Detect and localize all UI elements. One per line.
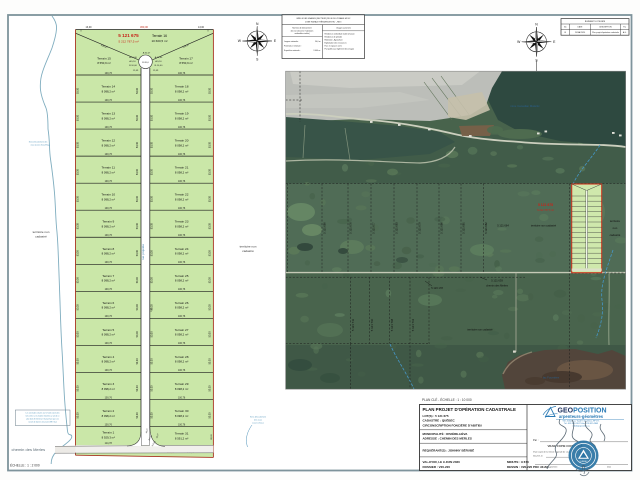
svg-text:50,00: 50,00 <box>151 87 154 94</box>
svg-text:8 098,2 m²: 8 098,2 m² <box>175 306 188 310</box>
svg-text:50,00: 50,00 <box>151 114 154 121</box>
svg-text:12,49: 12,49 <box>153 70 159 72</box>
svg-text:932, 3e Avenue, Val-d'Or (Québ: 932, 3e Avenue, Val-d'Or (Québec) J9P 1T… <box>563 419 600 422</box>
svg-text:50,00: 50,00 <box>136 412 139 419</box>
svg-text:chemin des Merles: chemin des Merles <box>486 283 508 287</box>
svg-text:5 121 680: 5 121 680 <box>323 222 327 234</box>
svg-text:20 MAI 2020: 20 MAI 2020 <box>575 31 585 34</box>
svg-text:100,76: 100,76 <box>105 72 113 75</box>
svg-text:114,78: 114,78 <box>105 442 113 445</box>
svg-text:50,00: 50,00 <box>209 358 212 365</box>
svg-text:Par :: Par : <box>533 438 539 442</box>
svg-text:Terrain 27: Terrain 27 <box>175 328 189 332</box>
svg-text:100,76: 100,76 <box>178 342 186 345</box>
svg-text:50,00: 50,00 <box>151 250 154 257</box>
svg-text:Terrain 23: Terrain 23 <box>175 220 189 224</box>
svg-text:100,76: 100,76 <box>178 261 186 264</box>
svg-text:8 550,9 m²: 8 550,9 m² <box>97 61 110 65</box>
svg-text:5 121 713: 5 121 713 <box>411 318 415 331</box>
svg-text:Terrain 18: Terrain 18 <box>175 85 189 89</box>
svg-text:50,00: 50,00 <box>209 196 212 203</box>
svg-text:50,00: 50,00 <box>77 141 80 148</box>
svg-text:territoire non: territoire non <box>33 230 50 234</box>
svg-text:eaux (cours d'eau): eaux (cours d'eau) <box>31 144 46 146</box>
svg-text:8 098,2 m²: 8 098,2 m² <box>175 279 188 283</box>
svg-text:rue projetée: rue projetée <box>141 244 145 260</box>
svg-text:8 098,2 m²: 8 098,2 m² <box>175 197 188 201</box>
svg-text:Terrain 24: Terrain 24 <box>175 247 189 251</box>
svg-text:territoire non cadastré: territoire non cadastré <box>467 328 493 332</box>
svg-text:01: 01 <box>564 32 566 34</box>
svg-text:50,00: 50,00 <box>151 358 154 365</box>
svg-text:5 121 681: 5 121 681 <box>462 222 466 234</box>
svg-text:No: No <box>564 27 566 29</box>
svg-text:Les servitudes situées sur le: Les servitudes situées sur le fonds vois… <box>26 411 60 414</box>
svg-text:PLAN PROJET D'OPÉRATION CADAST: PLAN PROJET D'OPÉRATION CADASTRALE <box>423 407 516 412</box>
svg-text:R:10,00: R:10,00 <box>155 65 163 67</box>
svg-text:8 098,2 m²: 8 098,2 m² <box>175 387 188 391</box>
svg-text:8 098,2 m²: 8 098,2 m² <box>102 170 115 174</box>
svg-text:50,00: 50,00 <box>151 196 154 203</box>
svg-text:8 098,2 m²: 8 098,2 m² <box>102 360 115 364</box>
svg-text:8 098,2 m²: 8 098,2 m² <box>102 279 115 283</box>
svg-text:100,76: 100,76 <box>178 396 186 399</box>
svg-text:50,00: 50,00 <box>77 87 80 94</box>
svg-text:100,76: 100,76 <box>178 153 186 156</box>
svg-text:50,00: 50,00 <box>77 385 80 392</box>
svg-text:CIRCONSCRIPTION FONCIÈRE D'ABI: CIRCONSCRIPTION FONCIÈRE D'ABITIBI <box>423 422 482 427</box>
svg-text:8 098,2 m²: 8 098,2 m² <box>175 252 188 256</box>
svg-text:8 550,9 m²: 8 550,9 m² <box>179 61 192 65</box>
svg-text:5 121 664: 5 121 664 <box>497 224 509 228</box>
svg-text:Date: Date <box>607 466 611 469</box>
svg-text:CADASTRE : QUÉBEC: CADASTRE : QUÉBEC <box>423 417 456 422</box>
svg-text:5 121 711: 5 121 711 <box>351 318 355 331</box>
svg-text:A:10,00: A:10,00 <box>129 56 137 59</box>
svg-text:8 098,2 m²: 8 098,2 m² <box>175 414 188 418</box>
svg-text:Résidence unifamiliale isolée: Résidence unifamiliale isolée (maison <box>325 34 355 36</box>
svg-text:100,76: 100,76 <box>178 99 186 102</box>
svg-text:3 000 m²: 3 000 m² <box>313 49 320 52</box>
svg-text:8 098,2 m²: 8 098,2 m² <box>102 387 115 391</box>
svg-text:Terrain 17: Terrain 17 <box>179 56 193 60</box>
svg-text:Sens d'écoulement: Sens d'écoulement <box>250 415 266 418</box>
svg-text:Terrain 26: Terrain 26 <box>175 301 189 305</box>
svg-text:Exploitation des ressources: Exploitation des ressources <box>325 42 347 45</box>
svg-text:50,00: 50,00 <box>136 168 139 175</box>
svg-text:5 121 708: 5 121 708 <box>390 318 394 331</box>
svg-text:Normes de lotissement: Normes de lotissement <box>292 27 312 30</box>
svg-text:non: non <box>613 226 618 230</box>
svg-text:Terrain 15: Terrain 15 <box>97 56 111 60</box>
svg-text:S 212 787,5 m²: S 212 787,5 m² <box>537 209 554 212</box>
svg-text:cadastré: cadastré <box>610 233 621 237</box>
svg-text:50,00: 50,00 <box>151 223 154 230</box>
svg-text:Terrain 29: Terrain 29 <box>175 382 189 386</box>
svg-text:100,76: 100,76 <box>178 72 186 75</box>
svg-text:50,00: 50,00 <box>136 385 139 392</box>
svg-text:Terrain 3: Terrain 3 <box>102 382 114 386</box>
svg-text:50,00: 50,00 <box>77 358 80 365</box>
svg-text:50,00: 50,00 <box>209 250 212 257</box>
svg-text:Terrain 2: Terrain 2 <box>102 409 114 413</box>
svg-text:PLAN CLÉ - ÉCHELLE : 1 : 10 00: PLAN CLÉ - ÉCHELLE : 1 : 10 000 <box>422 397 472 402</box>
svg-text:8 098,2 m²: 8 098,2 m² <box>102 197 115 201</box>
svg-text:Terrain 21: Terrain 21 <box>175 166 189 170</box>
svg-text:5 121 639: 5 121 639 <box>491 279 503 283</box>
svg-text:A:5,16: A:5,16 <box>155 60 162 63</box>
svg-text:100,76: 100,76 <box>105 423 113 426</box>
svg-text:5 121 675: 5 121 675 <box>118 33 139 38</box>
svg-text:Val-d'Or, le: Val-d'Or, le <box>533 456 544 458</box>
svg-text:50,00: 50,00 <box>151 277 154 284</box>
svg-text:A.G.: A.G. <box>623 31 627 34</box>
svg-text:8 098,2 m²: 8 098,2 m² <box>102 414 115 418</box>
svg-text:8 098,2 m²: 8 098,2 m² <box>175 170 188 174</box>
svg-text:Terrain 14: Terrain 14 <box>101 85 115 89</box>
svg-text:50,00: 50,00 <box>136 358 139 365</box>
svg-text:50,00: 50,00 <box>77 277 80 284</box>
svg-text:cadastré: cadastré <box>35 235 47 239</box>
svg-text:50,00: 50,00 <box>209 385 212 392</box>
svg-text:5 121 676: 5 121 676 <box>349 222 353 234</box>
svg-text:100,76: 100,76 <box>105 396 113 399</box>
svg-text:50,00: 50,00 <box>209 277 212 284</box>
svg-text:Terrain 6: Terrain 6 <box>102 301 114 305</box>
svg-text:12,49: 12,49 <box>133 70 139 72</box>
svg-text:Largeur minimale :: Largeur minimale : <box>284 41 299 43</box>
svg-text:100,76: 100,76 <box>105 126 113 129</box>
svg-text:8 098,2 m²: 8 098,2 m² <box>175 360 188 364</box>
svg-text:Terrain 31: Terrain 31 <box>175 432 189 436</box>
svg-text:50,00: 50,00 <box>136 141 139 148</box>
svg-text:Terrain 9: Terrain 9 <box>102 220 114 224</box>
svg-text:5 121 683: 5 121 683 <box>395 222 399 234</box>
svg-text:A:5,16: A:5,16 <box>129 60 136 63</box>
svg-text:Terrain 25: Terrain 25 <box>175 274 189 278</box>
svg-text:Terrain 8: Terrain 8 <box>102 247 114 251</box>
svg-text:DOSSIER : V20-220: DOSSIER : V20-220 <box>423 465 451 469</box>
svg-text:50,00: 50,00 <box>209 331 212 338</box>
svg-text:Puit public (au réglement de z: Puit public (au réglement de zonage) <box>325 48 355 51</box>
svg-text:LOT(S) : 5 121 675: LOT(S) : 5 121 675 <box>423 414 449 418</box>
svg-text:territoire non cadastré: territoire non cadastré <box>531 224 557 228</box>
svg-text:100,76: 100,76 <box>178 234 186 237</box>
svg-text:chemin des Merles: chemin des Merles <box>12 447 46 452</box>
svg-text:VAL-D'OR, LE 9 JUIN 2020: VAL-D'OR, LE 9 JUIN 2020 <box>423 460 461 464</box>
svg-text:50,00: 50,00 <box>209 141 212 148</box>
svg-text:Superficie minimale :: Superficie minimale : <box>284 50 301 52</box>
svg-text:50,00: 50,00 <box>77 168 80 175</box>
svg-text:100,76: 100,76 <box>105 207 113 210</box>
svg-text:50,00: 50,00 <box>209 412 212 419</box>
svg-text:A:10,00: A:10,00 <box>155 56 163 59</box>
svg-text:R:10,00: R:10,00 <box>129 65 137 67</box>
svg-text:S 212 787,5 m²: S 212 787,5 m² <box>118 39 139 43</box>
svg-text:5 121 682: 5 121 682 <box>484 222 488 234</box>
svg-text:50,00: 50,00 <box>151 141 154 148</box>
svg-text:Terrain 1: Terrain 1 <box>102 431 114 435</box>
svg-text:(cours d'eau): (cours d'eau) <box>253 421 264 424</box>
svg-text:50,00: 50,00 <box>77 304 80 311</box>
svg-text:100,76: 100,76 <box>178 369 186 372</box>
svg-text:100,76: 100,76 <box>178 423 186 426</box>
svg-text:Terrain 7: Terrain 7 <box>102 274 114 278</box>
svg-text:8 098,2 m²: 8 098,2 m² <box>102 252 115 256</box>
svg-text:8 098,2 m²: 8 098,2 m² <box>175 333 188 337</box>
svg-text:100,76: 100,76 <box>105 261 113 264</box>
svg-text:QUEBEC: QUEBEC <box>580 461 589 463</box>
svg-text:50,00: 50,00 <box>136 196 139 203</box>
svg-text:8 929,3 m²: 8 929,3 m² <box>102 435 115 439</box>
svg-text:13,00: 13,00 <box>86 26 93 29</box>
svg-text:mine Canadian Malartic: mine Canadian Malartic <box>510 104 540 108</box>
svg-text:50,00: 50,00 <box>151 331 154 338</box>
svg-text:100,76: 100,76 <box>105 99 113 102</box>
svg-text:50,00: 50,00 <box>209 114 212 121</box>
svg-text:territoire non: territoire non <box>240 245 257 249</box>
svg-text:Terrain 11: Terrain 11 <box>101 166 115 170</box>
svg-text:8 098,2 m²: 8 098,2 m² <box>102 89 115 93</box>
svg-text:50,0 m: 50,0 m <box>315 41 321 43</box>
svg-text:100,76: 100,76 <box>178 126 186 129</box>
svg-text:Sens d'écoulement des: Sens d'écoulement des <box>29 141 48 144</box>
svg-text:arpenteurs-géomètres: arpenteurs-géomètres <box>559 414 604 419</box>
svg-text:100,76: 100,76 <box>105 153 113 156</box>
svg-text:100,76: 100,76 <box>105 180 113 183</box>
svg-text:2,06: 2,06 <box>151 308 153 312</box>
svg-text:100,76: 100,76 <box>105 342 113 345</box>
svg-text:lac Fournière: lac Fournière <box>543 376 560 380</box>
svg-text:50,00: 50,00 <box>136 304 139 311</box>
svg-text:100,76: 100,76 <box>105 234 113 237</box>
svg-text:5 121 679: 5 121 679 <box>418 222 422 234</box>
svg-text:8 098,2 m²: 8 098,2 m² <box>102 116 115 120</box>
svg-text:100,76: 100,76 <box>178 207 186 210</box>
svg-text:50,00: 50,00 <box>77 196 80 203</box>
svg-text:Profondeur minimale :: Profondeur minimale : <box>284 45 302 47</box>
svg-text:50,00: 50,00 <box>77 331 80 338</box>
svg-text:Terrain 12: Terrain 12 <box>101 139 115 143</box>
svg-text:(lot non desservi / habitation: (lot non desservi / habitation <box>291 29 313 32</box>
svg-text:50,00: 50,00 <box>77 114 80 121</box>
svg-text:Terrain 20: Terrain 20 <box>175 139 189 143</box>
svg-text:A:30,27: A:30,27 <box>143 52 151 55</box>
svg-text:5 123 178: 5 123 178 <box>431 286 443 290</box>
svg-text:REQUÉRANT(S) : JOHNNY BÉRUBÉ: REQUÉRANT(S) : JOHNNY BÉRUBÉ <box>423 448 475 453</box>
svg-text:Terrain 13: Terrain 13 <box>101 112 115 116</box>
svg-text:Par: Par <box>623 27 626 29</box>
svg-text:50,00: 50,00 <box>209 168 212 175</box>
svg-text:50,00: 50,00 <box>209 87 212 94</box>
svg-text:MUNICIPALITÉ : RIVIÈRE-HÉVA: MUNICIPALITÉ : RIVIÈRE-HÉVA <box>423 431 469 436</box>
svg-text:DATE: DATE <box>578 26 583 29</box>
svg-text:Habitation - Agriculture: Habitation - Agriculture <box>325 39 343 42</box>
svg-text:Terrain 5: Terrain 5 <box>102 328 114 332</box>
svg-text:Terrain 10: Terrain 10 <box>101 193 115 197</box>
svg-text:DESCRIPTION: DESCRIPTION <box>599 27 612 29</box>
svg-text:8 098,2 m²: 8 098,2 m² <box>102 143 115 147</box>
svg-text:8 098,2 m²: 8 098,2 m² <box>175 143 188 147</box>
svg-text:50,00: 50,00 <box>209 304 212 311</box>
svg-text:cadastré: cadastré <box>242 249 254 253</box>
svg-text:Résidence de période: Résidence de période <box>325 37 342 39</box>
svg-text:GRILLE DES USAGES (SECTEUR) RU: GRILLE DES USAGES (SECTEUR) RU-30 DU ZON… <box>296 17 350 20</box>
svg-text:Terrain 28: Terrain 28 <box>175 355 189 359</box>
svg-text:50,00: 50,00 <box>151 385 154 392</box>
svg-text:50,00: 50,00 <box>136 277 139 284</box>
svg-text:100,76: 100,76 <box>178 180 186 183</box>
svg-text:8 098,2 m²: 8 098,2 m² <box>175 116 188 120</box>
svg-text:50,00: 50,00 <box>136 331 139 338</box>
svg-text:100,76: 100,76 <box>105 288 113 291</box>
svg-text:plan (lots 30 mètres). Il faut: plan (lots 30 mètres). Il faut prévoir q… <box>26 417 59 420</box>
svg-text:ÉCHELLE : 1 : 2 000: ÉCHELLE : 1 : 2 000 <box>10 462 40 467</box>
svg-text:5 121 677: 5 121 677 <box>372 222 376 234</box>
svg-text:8 591,2 m²: 8 591,2 m² <box>175 436 188 440</box>
svg-text:unifamilière isolée): unifamilière isolée) <box>295 33 310 35</box>
svg-text:Plan projet d'opération cadast: Plan projet d'opération cadastrale <box>592 31 619 34</box>
svg-text:8 098,2 m²: 8 098,2 m² <box>102 333 115 337</box>
svg-text:50,00: 50,00 <box>151 412 154 419</box>
svg-text:50,00: 50,00 <box>136 87 139 94</box>
svg-text:13,00: 13,00 <box>198 26 205 29</box>
svg-text:8 098,2 m²: 8 098,2 m² <box>102 306 115 310</box>
svg-text:100,76: 100,76 <box>178 315 186 318</box>
svg-text:Parc et espaces verts: Parc et espaces verts <box>325 45 342 48</box>
svg-text:Terrain 4: Terrain 4 <box>102 355 114 359</box>
svg-text:territoire: territoire <box>610 219 621 223</box>
svg-text:5 121 675: 5 121 675 <box>538 203 553 207</box>
svg-text:50,00: 50,00 <box>136 114 139 121</box>
svg-text:MINUTE : 9 673: MINUTE : 9 673 <box>507 460 529 464</box>
svg-text:88,60: 88,60 <box>211 433 213 439</box>
svg-text:8 098,2 m²: 8 098,2 m² <box>175 89 188 93</box>
svg-text:lots créés sur la matière illu: lots créés sur la matière illustrée au v… <box>26 414 60 417</box>
svg-text:50,00: 50,00 <box>77 412 80 419</box>
svg-text:Terrain 22: Terrain 22 <box>175 193 189 197</box>
svg-text:50,00: 50,00 <box>77 250 80 257</box>
svg-text:R:26,0: R:26,0 <box>142 62 149 64</box>
svg-text:ZONE RURALE 'RÉSIDENCES RU' -: ZONE RURALE 'RÉSIDENCES RU' - RB 3 <box>305 21 341 24</box>
svg-text:des eaux: des eaux <box>254 419 262 421</box>
svg-text:100,76: 100,76 <box>105 315 113 318</box>
svg-text:Terrain 30: Terrain 30 <box>175 409 189 413</box>
svg-text:info@geoposition.ca: info@geoposition.ca <box>572 425 590 428</box>
svg-text:5 121 686: 5 121 686 <box>440 222 444 234</box>
svg-text:Arpenteur-géomètre: Arpenteur-géomètre <box>541 466 558 469</box>
svg-text:50,00: 50,00 <box>136 250 139 257</box>
svg-text:Terrain 19: Terrain 19 <box>175 112 189 116</box>
svg-text:ADRESSE : CHEMIN DES MERLES: ADRESSE : CHEMIN DES MERLES <box>423 436 472 440</box>
svg-text:360,00: 360,00 <box>140 25 148 29</box>
svg-text:Terrain 16: Terrain 16 <box>152 34 167 38</box>
svg-text:seront de bonnes structures NE: seront de bonnes structures NE Il faut <box>28 420 57 423</box>
svg-text:ÉLÉMENTS UTILISÉS: ÉLÉMENTS UTILISÉS <box>585 20 606 23</box>
svg-text:100,76: 100,76 <box>178 288 186 291</box>
svg-text:10 600,5 m²: 10 600,5 m² <box>151 39 167 43</box>
svg-text:5 121 710: 5 121 710 <box>370 318 374 331</box>
svg-text:8 098,2 m²: 8 098,2 m² <box>102 225 115 229</box>
svg-text:50,00: 50,00 <box>151 168 154 175</box>
svg-text:8 098,2 m²: 8 098,2 m² <box>175 225 188 229</box>
svg-text:50,00: 50,00 <box>77 223 80 230</box>
svg-text:100,76: 100,76 <box>105 369 113 372</box>
svg-text:50,00: 50,00 <box>136 223 139 230</box>
svg-text:50,00: 50,00 <box>209 223 212 230</box>
svg-text:Usages autorisés: Usages autorisés <box>336 27 351 30</box>
